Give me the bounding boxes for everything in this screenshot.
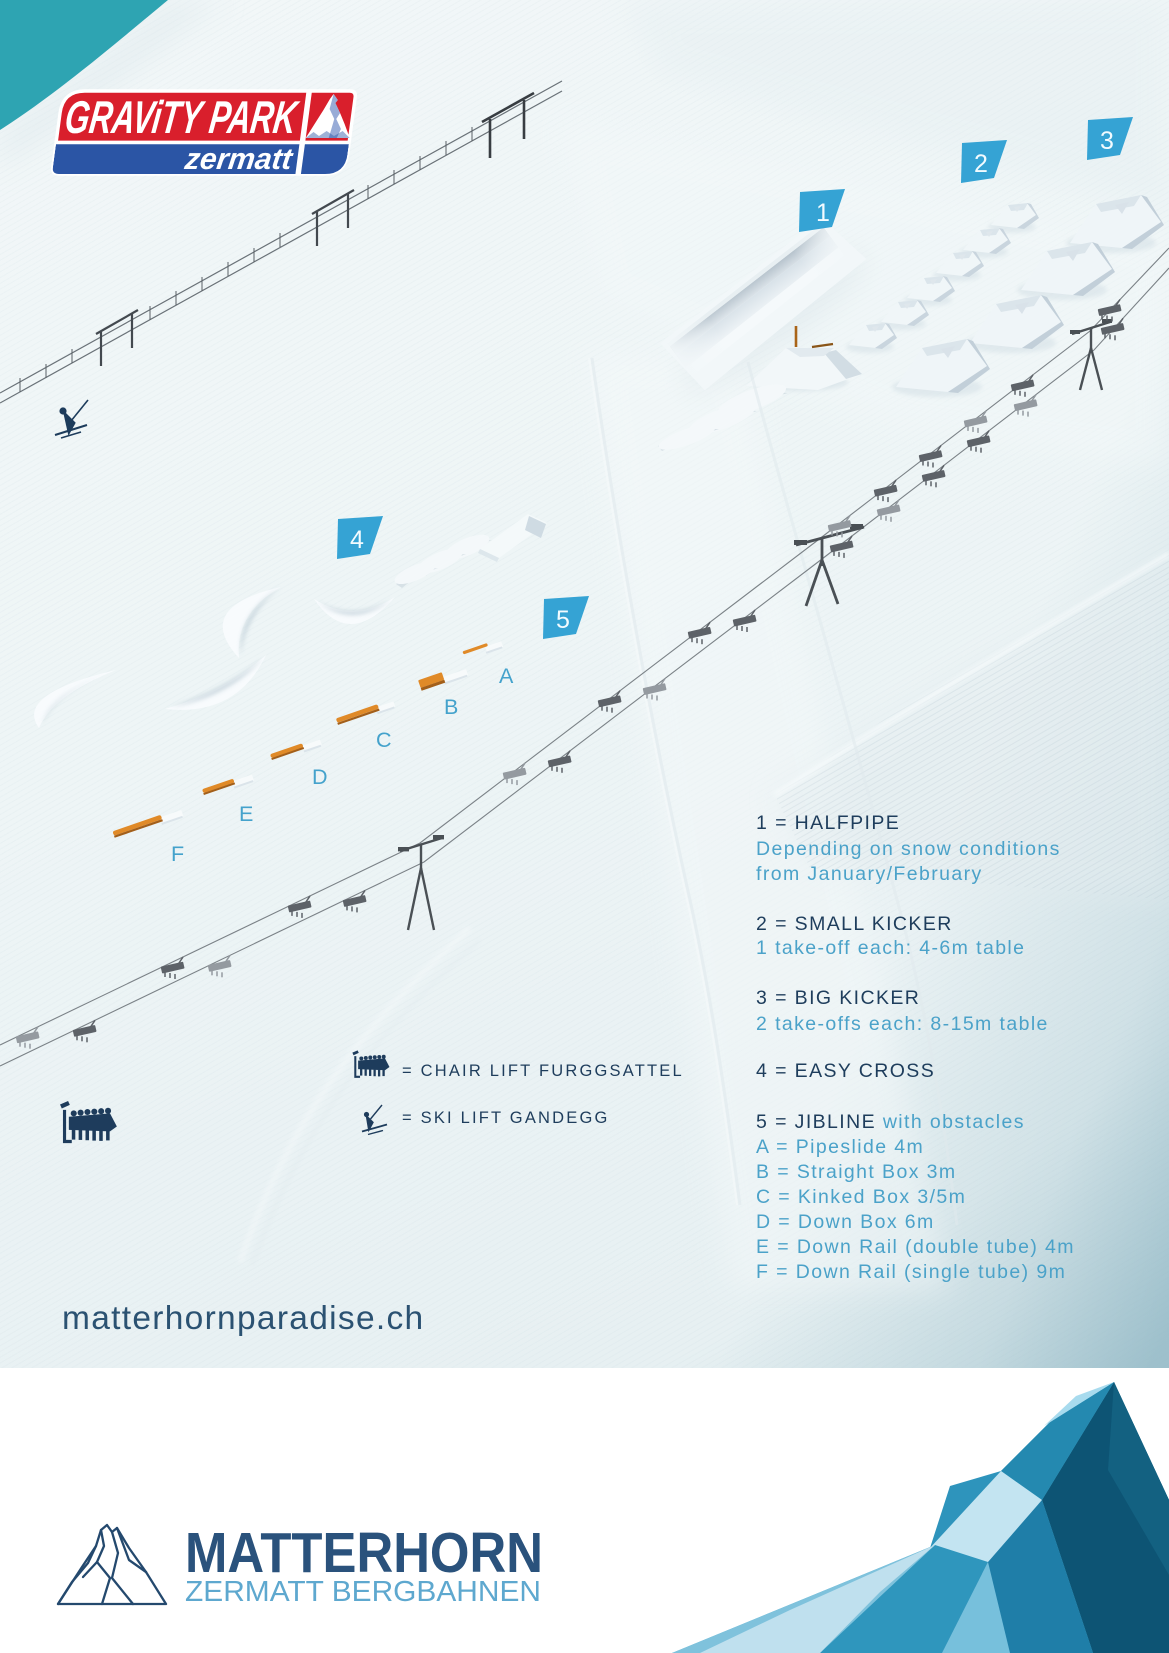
svg-text:2: 2 (974, 150, 988, 178)
svg-text:D: D (312, 765, 328, 789)
svg-text:C: C (376, 728, 392, 752)
svg-text:ZERMATT BERGBAHNEN: ZERMATT BERGBAHNEN (185, 1576, 541, 1608)
svg-text:4: 4 (350, 526, 364, 554)
svg-text:1: 1 (816, 199, 830, 227)
svg-text:5: 5 (556, 606, 570, 634)
svg-text:zermatt: zermatt (182, 143, 296, 176)
svg-text:F: F (171, 842, 184, 866)
svg-text:GRAViTY PARK: GRAViTY PARK (62, 91, 302, 143)
svg-text:3: 3 (1100, 127, 1114, 155)
svg-text:E: E (239, 802, 253, 826)
svg-text:A: A (499, 664, 514, 688)
svg-text:B: B (444, 695, 458, 719)
